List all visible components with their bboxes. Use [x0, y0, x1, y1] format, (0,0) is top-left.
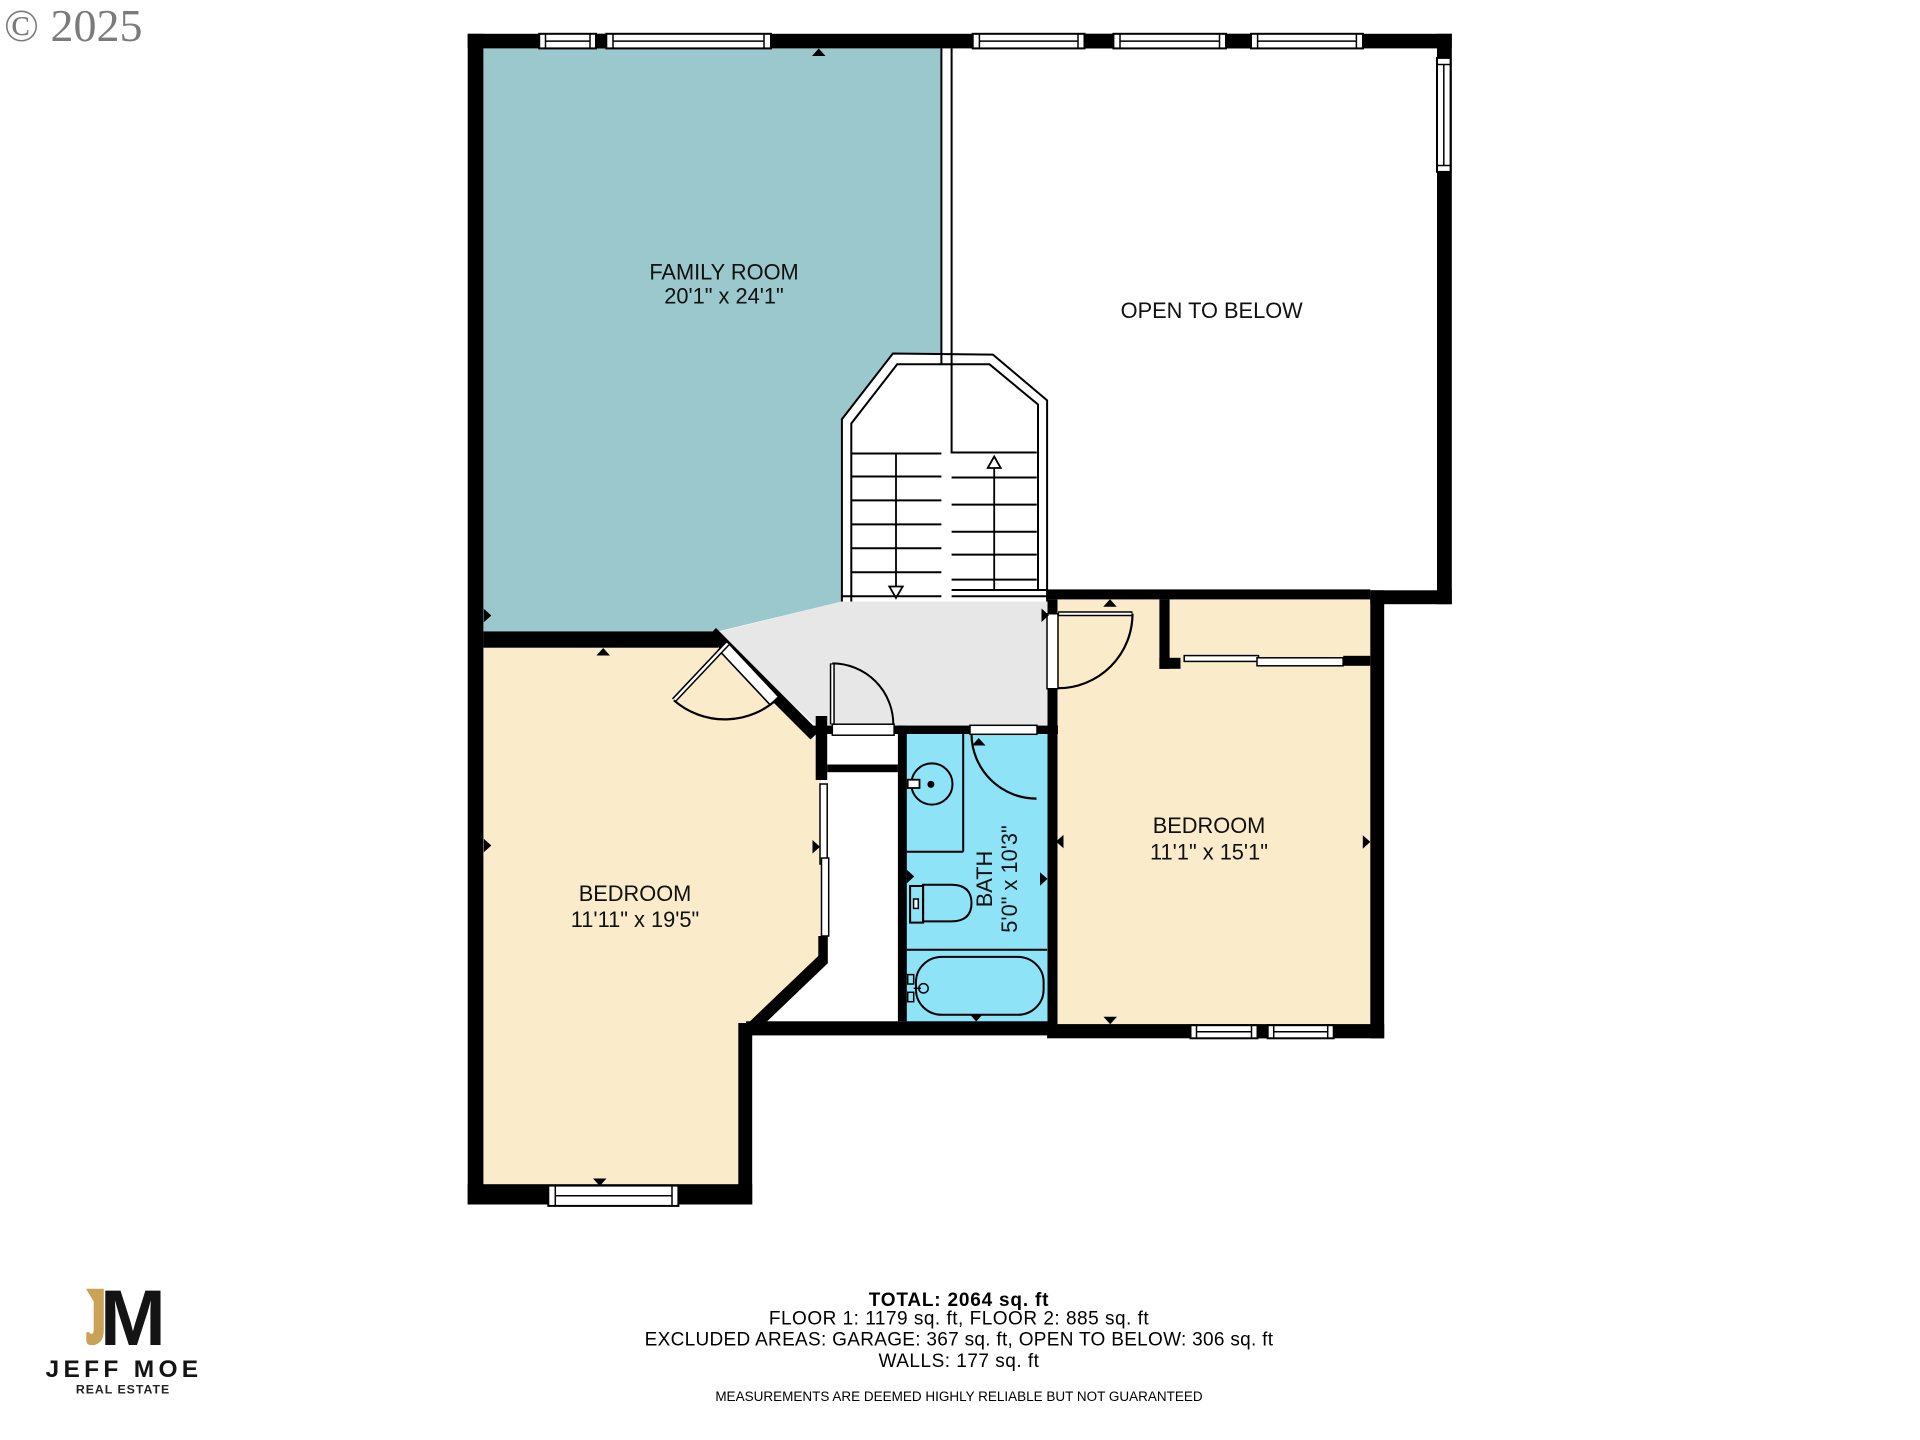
svg-text:FAMILY ROOM: FAMILY ROOM	[649, 259, 798, 284]
svg-text:REAL ESTATE: REAL ESTATE	[76, 1383, 170, 1397]
svg-text:11'11" x 19'5": 11'11" x 19'5"	[571, 907, 699, 932]
svg-text:BEDROOM: BEDROOM	[579, 881, 692, 906]
svg-text:JEFF MOE: JEFF MOE	[46, 1356, 203, 1383]
svg-text:BATH: BATH	[972, 851, 997, 908]
svg-text:BEDROOM: BEDROOM	[1153, 813, 1266, 838]
svg-text:WALLS: 177 sq. ft: WALLS: 177 sq. ft	[879, 1351, 1040, 1372]
svg-text:© 2025: © 2025	[4, 0, 142, 51]
svg-text:5'0" x 10'3": 5'0" x 10'3"	[997, 825, 1022, 932]
svg-text:FLOOR 1: 1179 sq. ft, FLOOR 2:: FLOOR 1: 1179 sq. ft, FLOOR 2: 885 sq. f…	[769, 1309, 1149, 1330]
svg-text:MEASUREMENTS ARE DEEMED HIGHLY: MEASUREMENTS ARE DEEMED HIGHLY RELIABLE …	[715, 1389, 1203, 1404]
svg-text:OPEN TO BELOW: OPEN TO BELOW	[1121, 298, 1304, 323]
svg-text:EXCLUDED AREAS: GARAGE: 367 sq: EXCLUDED AREAS: GARAGE: 367 sq. ft, OPEN…	[645, 1330, 1274, 1351]
svg-text:20'1" x 24'1": 20'1" x 24'1"	[664, 284, 784, 309]
svg-text:M: M	[100, 1273, 166, 1362]
svg-text:11'1" x 15'1": 11'1" x 15'1"	[1150, 840, 1268, 865]
